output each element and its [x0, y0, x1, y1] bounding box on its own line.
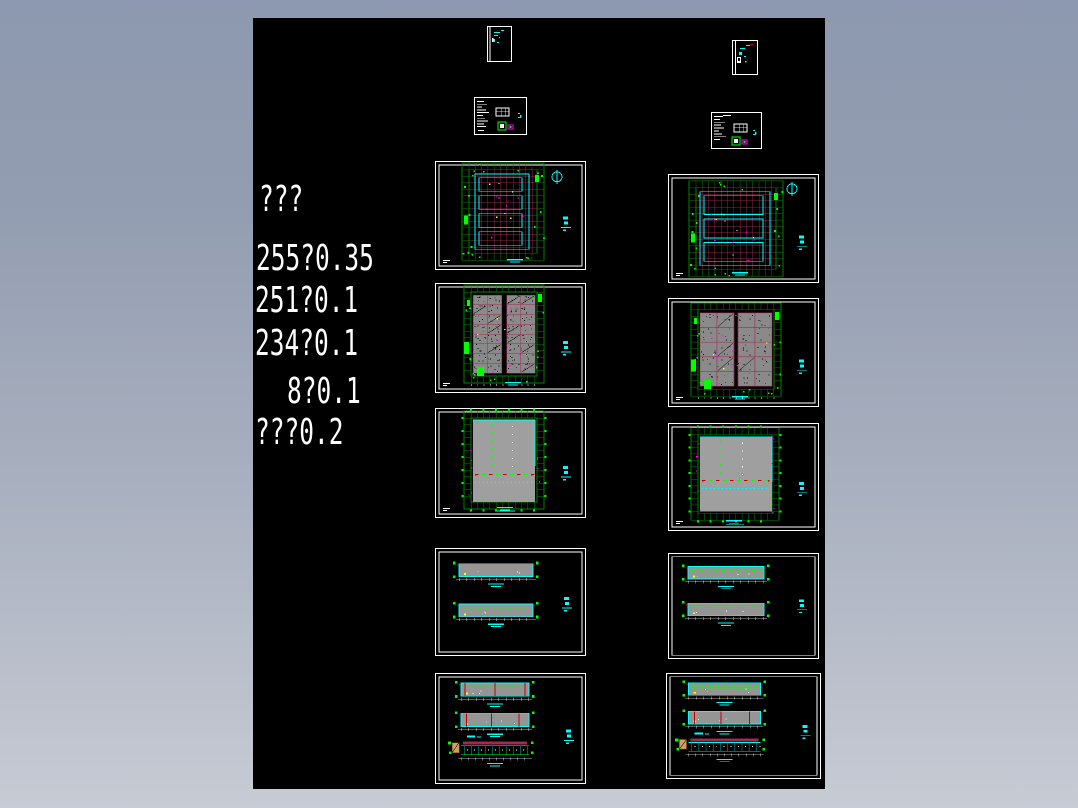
thumb-roof-plan-right — [668, 423, 819, 531]
thumb-cover-sheet-left — [487, 26, 512, 62]
thumb-elevations-left — [435, 548, 586, 656]
annotation-line: ??? — [259, 182, 303, 218]
thumb-detail-plan-right — [668, 298, 819, 407]
thumb-floor-plan-left — [435, 161, 586, 270]
annotation-line: ???0.2 — [255, 415, 343, 451]
thumb-sections-left — [435, 673, 586, 784]
thumb-detail-plan-left — [435, 283, 586, 393]
thumb-notes-sheet-left — [474, 97, 527, 135]
annotation-line: 8?0.1 — [287, 374, 361, 410]
north-arrow-icon — [787, 182, 797, 196]
thumb-elevations-right — [668, 553, 819, 659]
annotation-line: 255?0.35 — [256, 241, 374, 277]
north-arrow-icon — [552, 170, 562, 184]
thumb-sections-right — [666, 673, 821, 779]
thumb-floor-plan-right — [668, 174, 819, 283]
annotation-line: 234?0.1 — [255, 326, 358, 362]
drawing-canvas[interactable]: ??? 255?0.35 251?0.1 234?0.1 8?0.1 ???0.… — [253, 18, 825, 789]
thumb-cover-sheet-right — [732, 40, 758, 75]
thumb-roof-plan-left — [435, 408, 586, 518]
annotation-line: 251?0.1 — [255, 283, 358, 319]
thumb-notes-sheet-right — [711, 112, 762, 149]
